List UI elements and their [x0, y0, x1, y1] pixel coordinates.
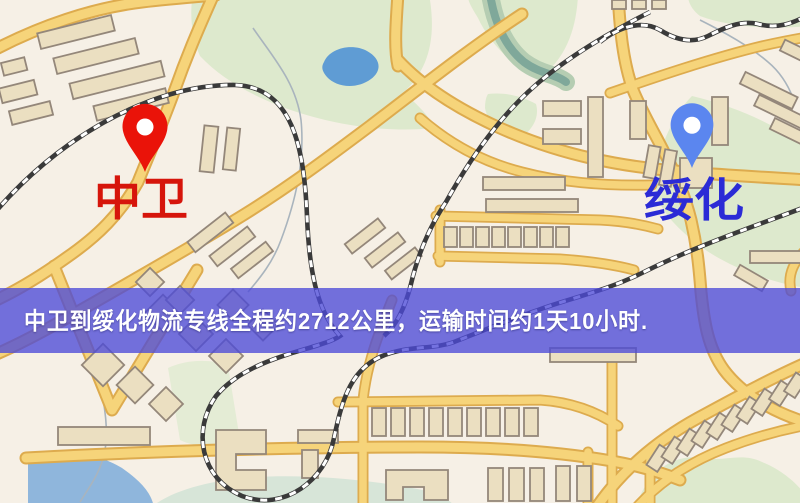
map-canvas[interactable]: 中卫到绥化物流专线全程约2712公里，运输时间约1天10小时. 中卫 绥化	[0, 0, 800, 503]
route-info-banner: 中卫到绥化物流专线全程约2712公里，运输时间约1天10小时.	[0, 288, 800, 353]
origin-label: 中卫	[94, 172, 188, 226]
destination-label: 绥化	[644, 174, 744, 226]
pin-hole	[137, 119, 154, 136]
pin-hole	[683, 117, 700, 134]
banner-text: 中卫到绥化物流专线全程约2712公里，运输时间约1天10小时.	[24, 307, 648, 334]
